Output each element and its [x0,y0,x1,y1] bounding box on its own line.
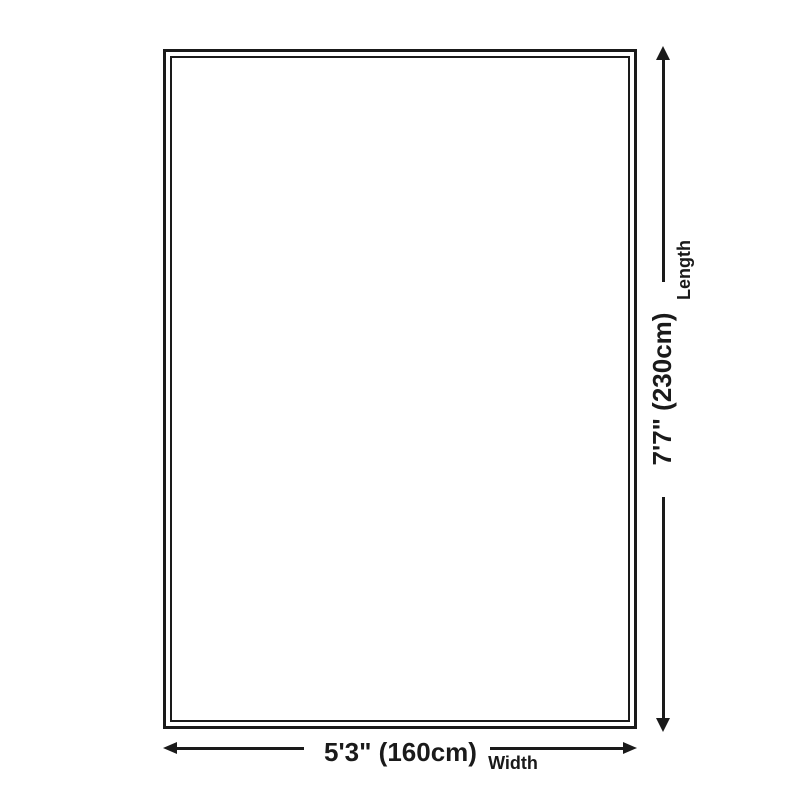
rug-inner-border [170,56,630,722]
rug-outline [163,49,637,729]
arrow-down-icon [656,718,670,732]
length-arrow-line-lower [662,497,665,718]
arrow-left-icon [163,742,177,754]
rug-size-diagram: 7'7" (230cm) Length 5'3" (160cm) Width [0,0,800,800]
arrow-right-icon [623,742,637,754]
width-label: Width [453,752,573,774]
length-label: Length [673,210,695,330]
width-arrow-line-right [490,747,624,750]
